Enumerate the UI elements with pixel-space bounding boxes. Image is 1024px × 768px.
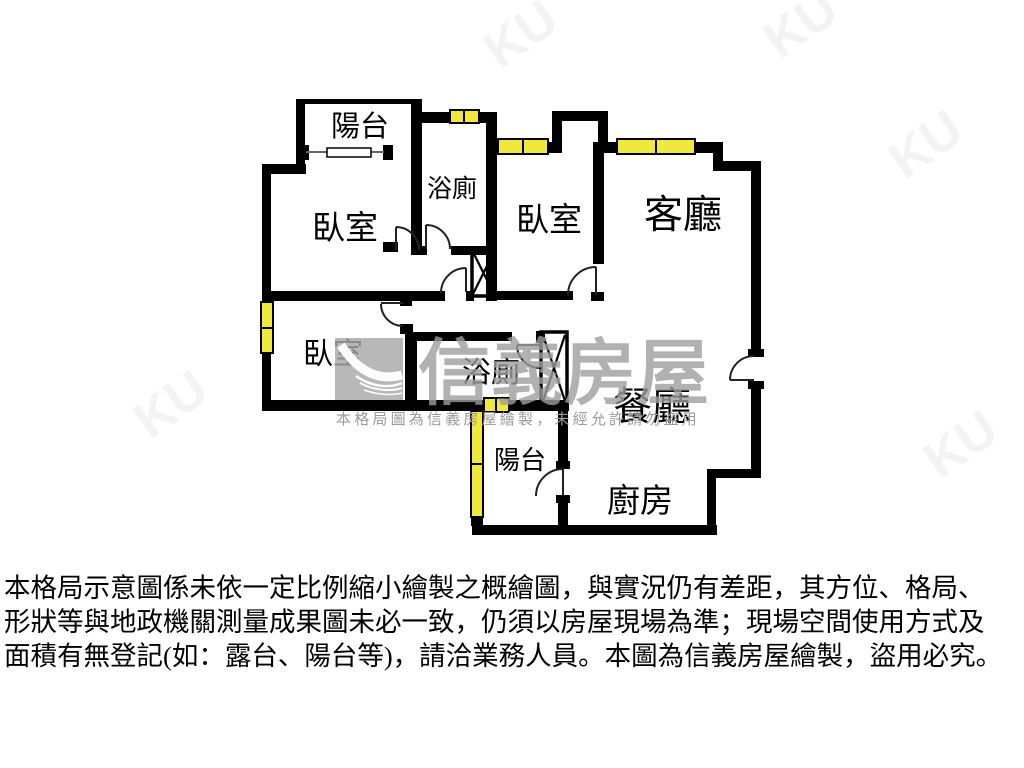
room-label-bathroom-1: 浴廁	[427, 175, 477, 203]
disclaimer-line-1: 本格局示意圖係未依一定比例縮小繪製之概繪圖，與實況仍有差距，其方位、格局、	[4, 571, 1022, 605]
svg-text:KU: KU	[474, 0, 569, 80]
svg-text:KU: KU	[914, 399, 1009, 490]
room-label-balcony-top: 陽台	[331, 110, 389, 143]
windows	[261, 110, 695, 517]
floor-plan-page: KU KU KU KU KU	[0, 0, 1024, 768]
sinyi-watermark: 信義房屋 本格局圖為信義房屋繪製，未經允許請勿盜用	[335, 334, 710, 428]
room-label-bedroom-1: 臥室	[312, 210, 378, 247]
door-bedroom-2	[568, 267, 596, 295]
room-label-bedroom-2: 臥室	[516, 202, 582, 239]
watermark-brand-text: 信義房屋	[418, 334, 710, 414]
watermark-notice-text: 本格局圖為信義房屋繪製，未經允許請勿盜用	[336, 410, 700, 428]
room-label-balcony-bottom: 陽台	[494, 446, 546, 475]
disclaimer-line-3: 面積有無登記(如：露台、陽台等)，請洽業務人員。本圖為信義房屋繪製，盜用必究。	[4, 639, 1022, 673]
disclaimer-line-2: 形狀等與地政機關測量成果圖未必一致，仍須以房屋現場為準；現場空間使用方式及	[4, 605, 1022, 639]
svg-text:KU: KU	[754, 0, 849, 70]
sliding-door-balcony-top	[306, 148, 384, 157]
svg-text:KU: KU	[124, 359, 219, 450]
door-entrance	[730, 356, 754, 380]
door-bedroom-3	[381, 303, 403, 326]
door-bathroom-1	[426, 225, 450, 249]
disclaimer-text: 本格局示意圖係未依一定比例縮小繪製之概繪圖，與實況仍有差距，其方位、格局、 形狀…	[4, 571, 1022, 673]
door-corridor	[441, 268, 466, 293]
room-label-kitchen: 廚房	[607, 483, 673, 520]
svg-text:KU: KU	[879, 99, 974, 190]
room-label-living-room: 客廳	[644, 194, 722, 237]
